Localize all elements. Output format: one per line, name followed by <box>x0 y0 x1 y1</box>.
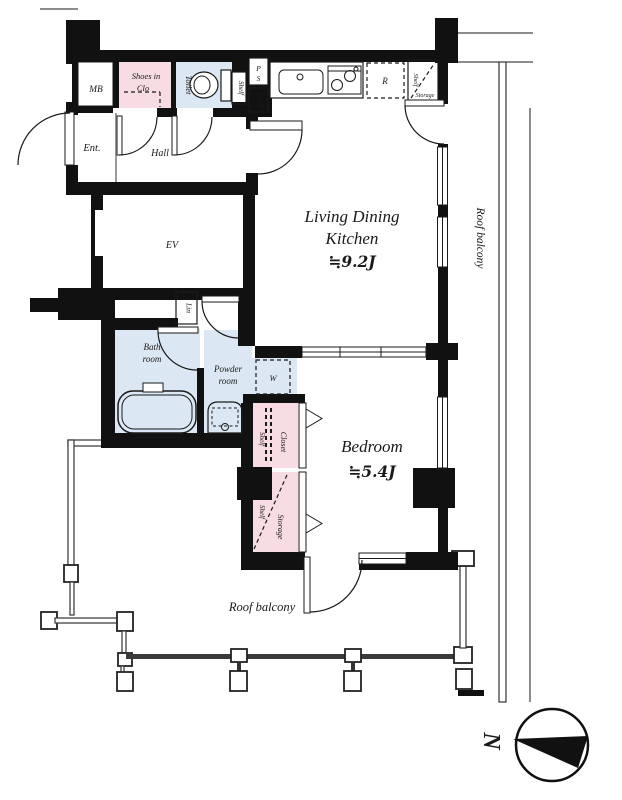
elevator-label: EV <box>165 240 180 251</box>
shoes-closet-label-1: Shoes in <box>132 71 161 81</box>
railing-post <box>345 649 361 662</box>
wall-under-bedroom-window <box>359 564 406 570</box>
mb-outer-door-gap <box>66 64 72 102</box>
wall-west-protrusion-arm <box>30 298 58 312</box>
washer-label: W <box>269 373 277 383</box>
wall-bath-powder-divider <box>197 368 204 435</box>
wall-above-shelf <box>232 62 246 72</box>
right-balcony-railing-vertical <box>460 566 466 648</box>
left-railing-vertical-3 <box>122 631 126 655</box>
toilet-tank <box>221 70 231 101</box>
linen-label: Lin <box>185 302 194 313</box>
kitchen-storage-label: Storage <box>416 93 435 99</box>
ldk-door-arc <box>258 130 302 174</box>
closet-label: Closet <box>279 432 288 453</box>
wall-east-mullion <box>438 205 448 217</box>
roof-balcony-right-label: Roof balcony <box>474 207 486 270</box>
wall-shoes-toilet-divider <box>171 62 176 108</box>
floor-plan-page: N MB Shoes in Clo Toilet P S Shelf Shelf… <box>0 0 622 800</box>
ldk-label-1: Living Dining <box>304 207 400 226</box>
toilet-label: Toilet <box>184 75 194 95</box>
entrance-door-leaf <box>65 112 74 165</box>
wall-closet-storage-block <box>237 467 272 500</box>
shelf-label-4: Shelf <box>258 432 266 447</box>
ev-door-gap <box>95 210 103 256</box>
closet-door-track <box>299 403 306 468</box>
compass: N <box>478 709 588 781</box>
railing-foot <box>117 672 133 691</box>
wall-powder-east <box>238 300 255 346</box>
entrance-label: Ent. <box>82 143 100 154</box>
hall-label: Hall <box>150 148 169 159</box>
powder-label-1: Powder <box>213 364 242 374</box>
railing-post <box>454 647 472 663</box>
bathtub-counter-tab <box>143 383 163 392</box>
walls <box>30 18 458 570</box>
wall-bedroom-south-west <box>241 552 305 570</box>
roof-balcony-bottom-label: Roof balcony <box>228 600 296 614</box>
kitchen-counter <box>270 62 363 98</box>
refrigerator-label: R <box>381 76 388 86</box>
wall-east-a <box>438 62 448 104</box>
mb-outline <box>78 62 113 106</box>
bedroom-area-label: ≒5.4J <box>348 462 397 481</box>
wall-hall-south <box>66 182 258 195</box>
wall-washer-nook-south <box>243 394 305 403</box>
wall-east-pillar <box>413 468 455 508</box>
wall-top-right-pillar <box>435 18 458 63</box>
wall-east-d <box>438 508 448 554</box>
storage-folding-door-mark <box>306 514 322 533</box>
shelf-label-3: Shelf <box>412 74 419 88</box>
powder-room-door-leaf <box>202 296 239 302</box>
railing-foot <box>344 671 361 691</box>
railing-foot <box>456 669 472 689</box>
railing-foot <box>230 671 247 691</box>
compass-north-label: N <box>478 731 504 751</box>
shoes-closet-label-2: Clo <box>137 83 149 93</box>
bedroom-label: Bedroom <box>341 437 403 456</box>
shelf-label-5: Shelf <box>258 505 266 520</box>
bottom-railing-rail <box>126 654 470 659</box>
toilet-door-leaf <box>172 116 177 155</box>
closet-folding-door-mark <box>306 409 322 428</box>
kitchen-side-door-arc <box>405 105 444 144</box>
wall-mb-south <box>76 106 113 113</box>
shoes-closet-door-leaf <box>117 116 122 155</box>
balcony-door-leaf <box>304 557 310 613</box>
powder-label-2: room <box>219 376 238 386</box>
kitchen-side-door-leaf <box>405 100 444 106</box>
railing-post <box>64 565 78 582</box>
balcony-door-arc <box>310 560 362 612</box>
bath-label-2: room <box>143 354 162 364</box>
entrance-door-arc <box>18 113 70 165</box>
left-railing-horizontal <box>55 618 123 623</box>
shelf-label-2: Shelf <box>257 93 265 108</box>
pipe-space-label-p: P <box>255 64 261 73</box>
wall-ldk-bedroom-west <box>255 346 302 358</box>
wall-east-c <box>438 267 448 397</box>
floor-plan-svg: N MB Shoes in Clo Toilet P S Shelf Shelf… <box>0 0 622 800</box>
wall-top-row-south-b <box>213 108 246 117</box>
shelf-label-1: Shelf <box>237 81 245 96</box>
ldk-door-leaf <box>250 121 302 130</box>
toilet-door-arc <box>174 117 212 155</box>
bath-label-1: Bath <box>144 342 161 352</box>
ldk-label-2: Kitchen <box>325 229 379 248</box>
left-railing-vertical <box>68 440 74 567</box>
bath-door-leaf <box>158 327 198 333</box>
wall-mb-shoes-divider <box>113 62 119 108</box>
storage-door-track <box>299 472 306 552</box>
mb-label: MB <box>88 85 103 95</box>
pipe-space-label-s: S <box>257 74 261 83</box>
storage-label: Storage <box>276 515 285 540</box>
railing-post <box>117 612 133 631</box>
railing-post <box>231 649 247 662</box>
wall-ev-east <box>243 185 255 300</box>
ldk-area-label: ≒9.2J <box>328 252 377 271</box>
railing-foot-bar <box>458 690 484 696</box>
wall-bath-powder-south <box>101 433 253 448</box>
left-railing-vertical-2 <box>70 582 74 615</box>
right-railing-double-line <box>499 62 506 702</box>
wall-bedroom-south-east <box>406 552 458 570</box>
